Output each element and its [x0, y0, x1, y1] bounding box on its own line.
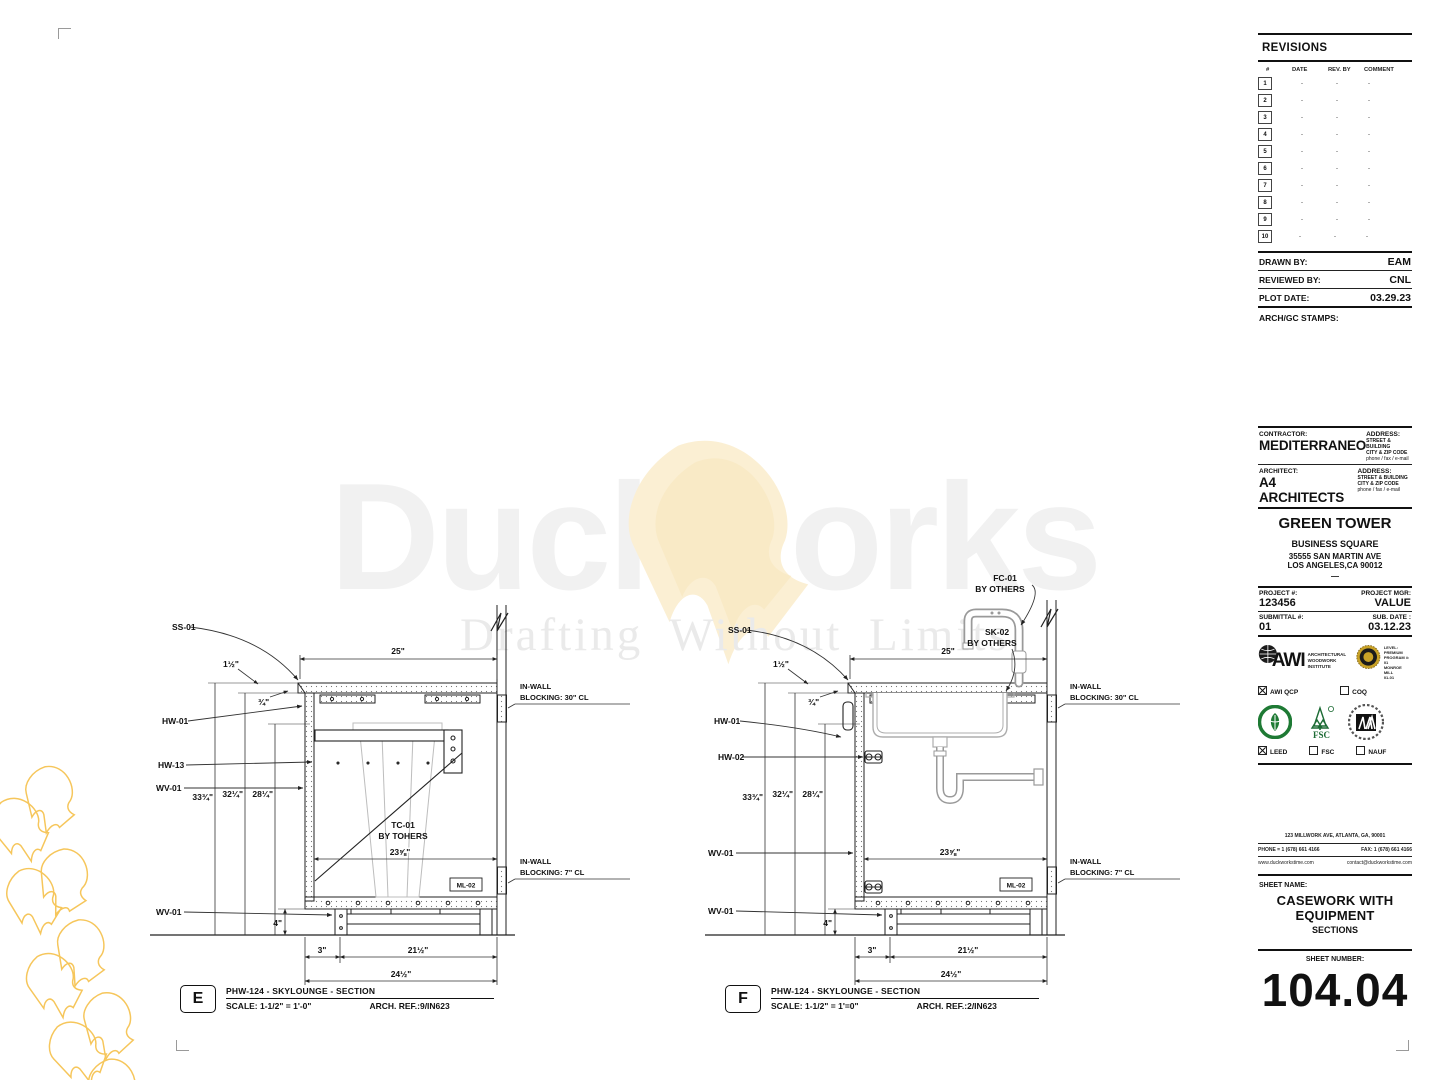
reviewed-by-row: REVIEWED BY:CNL — [1258, 271, 1412, 288]
architect-name: A4 ARCHITECTS — [1259, 475, 1358, 505]
svg-text:IN-WALL: IN-WALL — [1070, 857, 1102, 866]
sheet-number: 104.04 — [1258, 963, 1412, 1017]
svg-text:IN-WALL: IN-WALL — [1070, 682, 1102, 691]
rev-col-revby: REV. BY — [1328, 67, 1364, 73]
section-e-badge: E — [180, 985, 216, 1013]
title-block: REVISIONS # DATE REV. BY COMMENT 1--- 2-… — [1258, 0, 1412, 1080]
dim-inner: 23⅝" — [390, 847, 411, 857]
fsc-wordmark: FSC — [1313, 730, 1330, 740]
company-website-link[interactable]: www.duckworkstime.com — [1258, 860, 1314, 866]
svg-text:IN-WALL: IN-WALL — [520, 682, 552, 691]
ml02-label: ML-02 — [457, 883, 476, 890]
dim-overhang: 1½" — [223, 659, 239, 669]
rev-col-comment: COMMENT — [1364, 67, 1394, 73]
dim-b2: 21½" — [408, 945, 429, 955]
aia-ceu-icon — [1348, 704, 1384, 740]
dim-b3: 24½" — [391, 969, 412, 979]
svg-text:BLOCKING: 30" CL: BLOCKING: 30" CL — [1070, 693, 1139, 702]
dim-v1: 33¾" — [192, 792, 213, 802]
section-e-titlebar: E PHW-124 - SKYLOUNGE - SECTION SCALE: 1… — [180, 985, 494, 1013]
section-e-archref: ARCH. REF.:9/IN623 — [369, 1001, 449, 1011]
dim-b1: 3" — [318, 945, 327, 955]
sheet-number-label: SHEET NUMBER: — [1258, 956, 1412, 963]
inwall-blocking-top-note: IN-WALL BLOCKING: 30" CL — [508, 682, 630, 708]
revision-row: 8--- — [1258, 194, 1412, 211]
revision-row: 6--- — [1258, 160, 1412, 177]
cert-row-2: FSC — [1258, 704, 1412, 740]
awi-qcp-checkbox[interactable]: AWI QCP — [1258, 686, 1298, 696]
leed-badge-icon — [1258, 705, 1292, 739]
section-f-scale: SCALE: 1-1/2" = 1'=0" — [771, 1001, 859, 1011]
section-f-titlebar: F PHW-124 - SKYLOUNGE - SECTION SCALE: 1… — [725, 985, 1039, 1013]
dim-v3: 28¼" — [252, 789, 273, 799]
section-e-title: PHW-124 - SKYLOUNGE - SECTION — [226, 986, 494, 996]
inwall-blocking-bottom-note: IN-WALL BLOCKING: 7" CL — [508, 857, 630, 883]
dim-b3: 24½" — [941, 969, 962, 979]
wv01-top-label: WV-01 — [708, 848, 734, 858]
hw01-label: HW-01 — [162, 716, 189, 726]
company-email-link[interactable]: contact@duckworkstime.com — [1347, 860, 1412, 866]
dim-b1: 3" — [868, 945, 877, 955]
contractor-name: MEDITERRANEO — [1259, 438, 1366, 453]
project-identity: GREEN TOWER BUSINESS SQUARE 35555 SAN MA… — [1258, 515, 1412, 581]
hinge-icon — [865, 751, 882, 763]
cert-checks-2: LEED FSC NAUF — [1258, 746, 1412, 756]
sheet-name: CASEWORK WITH EQUIPMENT SECTIONS — [1258, 893, 1412, 935]
project-name: GREEN TOWER — [1258, 515, 1412, 532]
dim-25: 25" — [941, 646, 955, 656]
tc01-sub-label: BY TOHERS — [378, 831, 428, 841]
section-f-drawing: ML-02 — [660, 555, 1220, 1010]
submittal-row: SUBMITTAL #:01 SUB. DATE :03.12.23 — [1258, 612, 1412, 635]
nauf-checkbox[interactable]: NAUF — [1356, 746, 1386, 756]
dim-toe: 4" — [273, 918, 282, 928]
rev-col-date: DATE — [1292, 67, 1328, 73]
stamps-label: ARCH/GC STAMPS: — [1259, 313, 1412, 323]
coq-checkbox[interactable]: COQ — [1340, 686, 1367, 696]
leed-checkbox[interactable]: LEED — [1258, 746, 1287, 756]
drawn-by-row: DRAWN BY:EAM — [1258, 253, 1412, 270]
dim-v2: 32¼" — [222, 789, 243, 799]
inwall-blocking-top-note: IN-WALL BLOCKING: 30" CL — [1058, 682, 1180, 708]
section-e-drawing: ML-02 — [110, 585, 670, 1035]
awi-wordmark: AWI — [1272, 650, 1305, 671]
dim-inner: 23⅝" — [940, 847, 961, 857]
sk02-label: SK-02 — [985, 627, 1009, 637]
rev-col-num: # — [1258, 67, 1292, 73]
sheet-name-label: SHEET NAME: — [1259, 882, 1412, 889]
ss01-label: SS-01 — [728, 625, 752, 635]
corner-mark — [176, 1040, 189, 1051]
company-phone-fax: PHONE = 1 (678) 661 4166 FAX: 1 (678) 66… — [1258, 847, 1412, 853]
fc01-label: FC-01 — [993, 573, 1017, 583]
inwall-blocking-bottom-note: IN-WALL BLOCKING: 7" CL — [1058, 857, 1180, 883]
sk02-sub-label: BY OTHERS — [967, 638, 1017, 648]
revision-row: 1--- — [1258, 75, 1412, 92]
dim-overhang: 1½" — [773, 659, 789, 669]
section-e-scale: SCALE: 1-1/2" = 1'-0" — [226, 1001, 311, 1011]
fsc-tree-icon: FSC — [1304, 704, 1336, 740]
dim-toe: 4" — [823, 918, 832, 928]
dim-v1: 33¾" — [742, 792, 763, 802]
hw01-label: HW-01 — [714, 716, 741, 726]
section-f-title: PHW-124 - SKYLOUNGE - SECTION — [771, 986, 1039, 996]
dim-25: 25" — [391, 646, 405, 656]
section-f-badge: F — [725, 985, 761, 1013]
dim-v3: 28¼" — [802, 789, 823, 799]
ml02-tag: ML-02 — [450, 878, 482, 891]
dim-small: ¾" — [258, 697, 269, 707]
svg-text:BLOCKING: 30" CL: BLOCKING: 30" CL — [520, 693, 589, 702]
svg-text:IN-WALL: IN-WALL — [520, 857, 552, 866]
revision-row: 5--- — [1258, 143, 1412, 160]
hw02-label: HW-02 — [718, 752, 745, 762]
fsc-checkbox[interactable]: FSC — [1309, 746, 1334, 756]
cert-checks-1: AWI QCP COQ — [1258, 686, 1412, 696]
dim-v2: 32¼" — [772, 789, 793, 799]
fc01-sub-label: BY OTHERS — [975, 584, 1025, 594]
section-f-archref: ARCH. REF.:2/IN623 — [917, 1001, 997, 1011]
project-number-row: PROJECT #:123456 PROJECT MGR:VALUE — [1258, 588, 1412, 611]
ml02-tag: ML-02 — [1000, 878, 1032, 891]
corner-mark — [58, 28, 71, 39]
ss01-label: SS-01 — [172, 622, 196, 632]
revision-row: 3--- — [1258, 109, 1412, 126]
company-web-email: www.duckworkstime.com contact@duckworkst… — [1258, 860, 1412, 866]
hw13-label: HW-13 — [158, 760, 185, 770]
cert-row-1: AWI ARCHITECTURALWOODWORKINSTITUTE LEVEL… — [1258, 642, 1412, 680]
svg-text:BLOCKING: 7" CL: BLOCKING: 7" CL — [520, 868, 585, 877]
dim-small: ¾" — [808, 697, 819, 707]
revision-row: 2--- — [1258, 92, 1412, 109]
revision-row: 4--- — [1258, 126, 1412, 143]
revision-row: 10--- — [1258, 228, 1412, 245]
contractor-row: CONTRACTOR: MEDITERRANEO ADDRESS: STREET… — [1258, 428, 1412, 464]
hinge-icon — [865, 881, 882, 893]
revisions-title: REVISIONS — [1262, 42, 1412, 54]
architect-row: ARCHITECT: A4 ARCHITECTS ADDRESS: STREET… — [1258, 465, 1412, 507]
wv01-top-label: WV-01 — [156, 783, 182, 793]
company-address: 123 MILLWORK AVE, ATLANTA, GA, 90001 — [1258, 833, 1412, 839]
ml02-label: ML-02 — [1007, 883, 1026, 890]
revision-row: 7--- — [1258, 177, 1412, 194]
drawing-sheet: Duck orks Drafting Without Limits — [0, 0, 1440, 1080]
plot-date-row: PLOT DATE:03.29.23 — [1258, 289, 1412, 306]
wv01-bottom-label: WV-01 — [156, 907, 182, 917]
wv01-bottom-label: WV-01 — [708, 906, 734, 916]
tc01-label: TC-01 — [391, 820, 415, 830]
revision-row: 9--- — [1258, 211, 1412, 228]
dim-b2: 21½" — [958, 945, 979, 955]
qcp-seal-icon — [1356, 642, 1381, 672]
svg-text:BLOCKING: 7" CL: BLOCKING: 7" CL — [1070, 868, 1135, 877]
